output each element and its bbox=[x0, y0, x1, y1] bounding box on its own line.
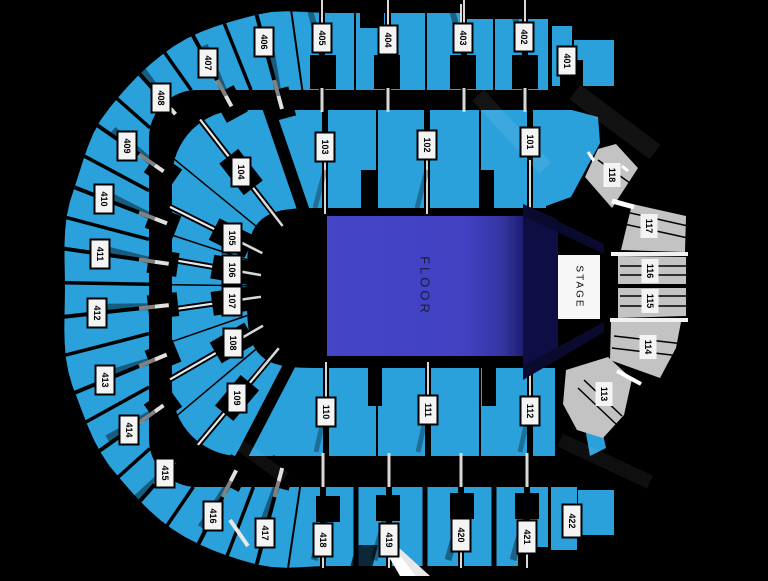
svg-text:106: 106 bbox=[227, 262, 237, 277]
svg-text:107: 107 bbox=[227, 293, 237, 308]
svg-text:405: 405 bbox=[317, 30, 327, 45]
svg-text:111: 111 bbox=[423, 403, 433, 417]
svg-text:406: 406 bbox=[259, 34, 269, 49]
svg-text:403: 403 bbox=[458, 30, 468, 45]
svg-text:412: 412 bbox=[92, 305, 102, 320]
svg-text:112: 112 bbox=[525, 404, 535, 419]
svg-text:422: 422 bbox=[567, 513, 577, 528]
svg-text:410: 410 bbox=[99, 191, 109, 206]
svg-text:401: 401 bbox=[562, 53, 572, 68]
svg-text:417: 417 bbox=[260, 525, 270, 540]
svg-text:101: 101 bbox=[525, 134, 535, 149]
svg-text:114: 114 bbox=[643, 340, 653, 355]
svg-text:FLOOR: FLOOR bbox=[418, 256, 433, 316]
svg-text:418: 418 bbox=[318, 532, 328, 547]
svg-text:113: 113 bbox=[599, 387, 609, 402]
svg-text:102: 102 bbox=[422, 137, 432, 152]
svg-text:408: 408 bbox=[156, 90, 166, 105]
svg-text:419: 419 bbox=[384, 532, 394, 547]
svg-text:416: 416 bbox=[208, 508, 218, 523]
svg-text:115: 115 bbox=[645, 294, 655, 309]
svg-text:415: 415 bbox=[160, 465, 170, 480]
svg-text:414: 414 bbox=[124, 422, 134, 437]
svg-text:411: 411 bbox=[95, 247, 105, 262]
svg-text:421: 421 bbox=[522, 529, 532, 544]
svg-text:105: 105 bbox=[227, 230, 237, 245]
svg-text:118: 118 bbox=[607, 168, 617, 183]
svg-text:110: 110 bbox=[321, 405, 331, 420]
svg-text:117: 117 bbox=[644, 219, 654, 234]
svg-text:402: 402 bbox=[519, 29, 529, 44]
svg-text:103: 103 bbox=[320, 139, 330, 154]
svg-text:420: 420 bbox=[456, 527, 466, 542]
svg-text:104: 104 bbox=[236, 164, 246, 179]
svg-text:413: 413 bbox=[100, 372, 110, 387]
svg-text:109: 109 bbox=[232, 390, 242, 405]
svg-text:STAGE: STAGE bbox=[574, 265, 585, 308]
svg-text:409: 409 bbox=[122, 138, 132, 153]
svg-text:407: 407 bbox=[203, 55, 213, 70]
svg-text:116: 116 bbox=[645, 264, 655, 279]
svg-text:404: 404 bbox=[383, 32, 393, 47]
svg-text:108: 108 bbox=[228, 335, 238, 350]
